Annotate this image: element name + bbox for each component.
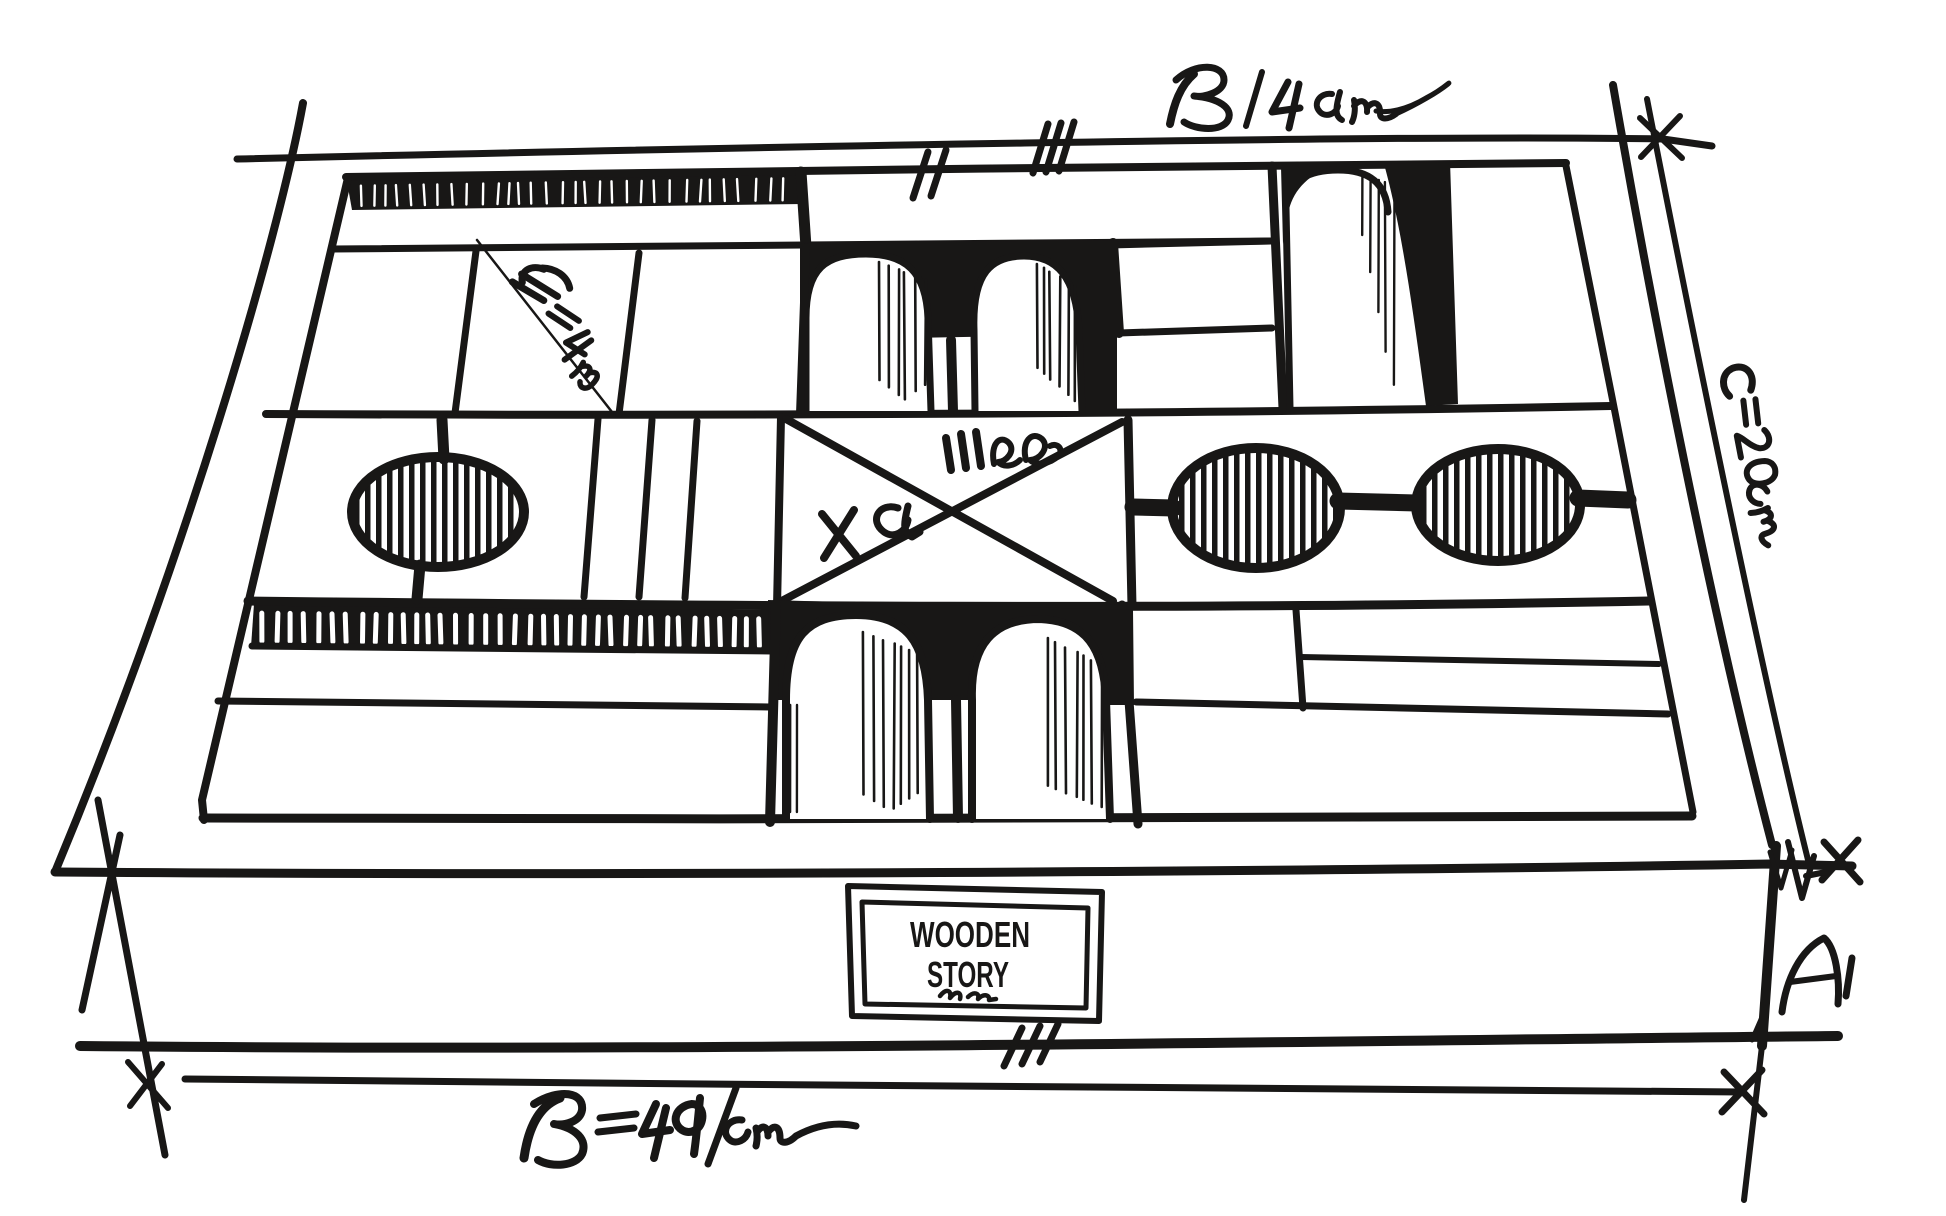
svg-text:STORY: STORY	[927, 954, 1009, 995]
svg-text:WOODEN: WOODEN	[910, 914, 1030, 955]
